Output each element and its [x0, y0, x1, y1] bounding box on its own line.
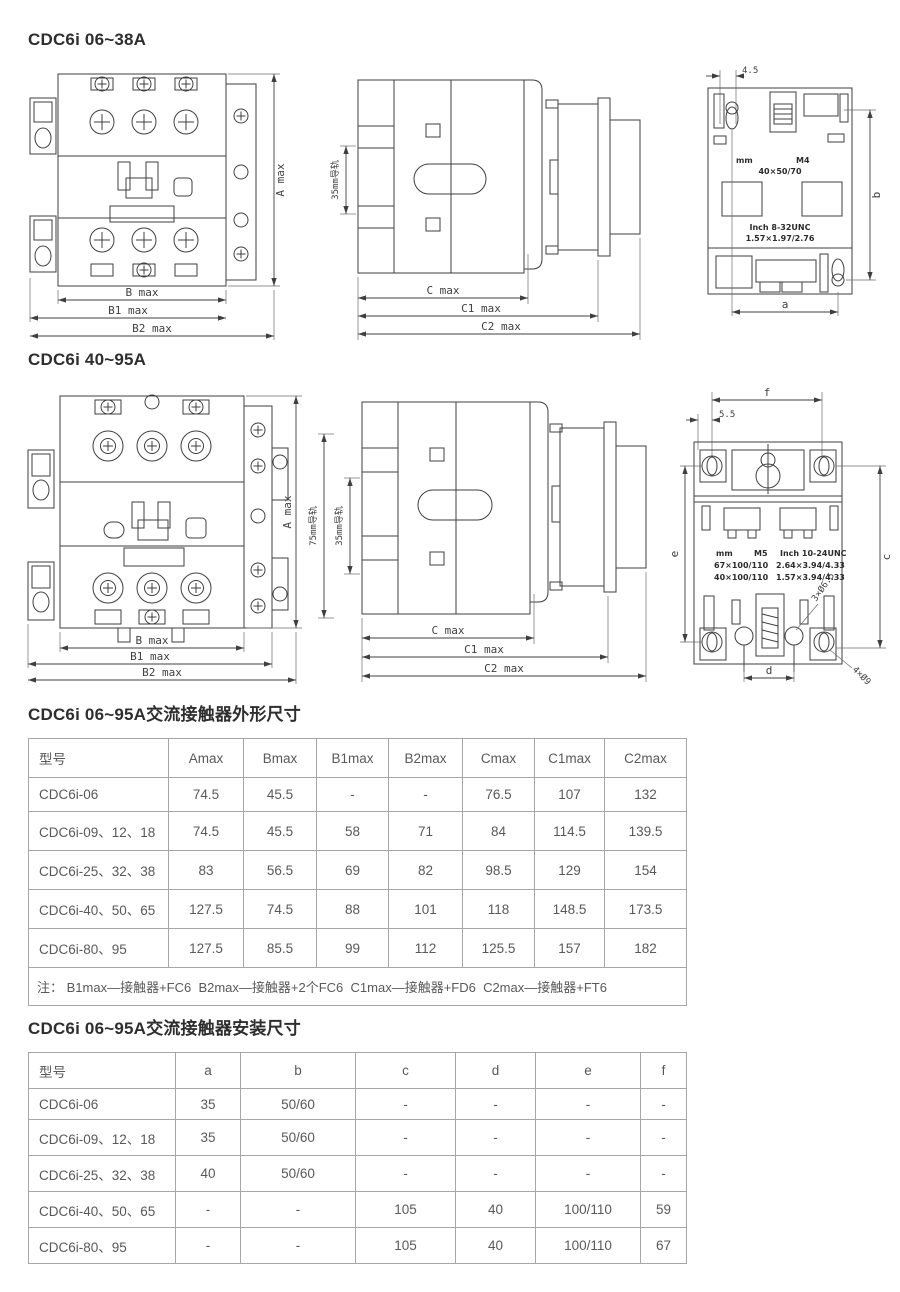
value-cell: - — [241, 1228, 356, 1264]
back-view-drawing-06-38a: 4.5 mm M4 40×50/70 Inch 8-32UNC 1.57×1.9… — [684, 62, 892, 344]
table-body: CDC6i-063550/60----CDC6i-09、12、183550/60… — [29, 1089, 687, 1264]
mount-inch-label: 1.57×1.97/2.76 — [746, 234, 815, 243]
value-cell: 45.5 — [244, 778, 317, 812]
side2-rail-dims: 75mm导轨 35mm导轨 — [307, 434, 360, 618]
value-cell: 71 — [389, 812, 463, 851]
table-row: CDC6i-09、12、183550/60---- — [29, 1120, 687, 1156]
value-cell: 99 — [317, 929, 389, 968]
value-cell: 40 — [456, 1228, 536, 1264]
value-cell: 118 — [463, 890, 535, 929]
dim-label-c-max: C max — [426, 284, 459, 297]
unit-mm-label: mm — [716, 549, 733, 558]
value-cell: - — [176, 1228, 241, 1264]
value-cell: 56.5 — [244, 851, 317, 890]
value-cell: 139.5 — [605, 812, 687, 851]
front1-body — [30, 74, 256, 286]
dim-label-b-max: B max — [125, 286, 158, 299]
mount-inch-row1: 2.64×3.94/4.33 — [776, 561, 845, 570]
value-cell: - — [356, 1089, 456, 1120]
model-cell: CDC6i-09、12、18 — [29, 812, 169, 851]
dim-label-c2-max: C2 max — [481, 320, 521, 333]
value-cell: - — [356, 1120, 456, 1156]
unit-inch-label: Inch 10-24UNC — [780, 549, 847, 558]
mounting-dimensions-table: 型号abcdef CDC6i-063550/60----CDC6i-09、12、… — [28, 1052, 687, 1264]
value-cell: 84 — [463, 812, 535, 851]
front2-body — [28, 395, 288, 642]
column-header: a — [176, 1053, 241, 1089]
value-cell: 74.5 — [169, 812, 244, 851]
value-cell: - — [176, 1192, 241, 1228]
back1-dimensions: b a — [732, 110, 883, 316]
value-cell: 100/110 — [536, 1228, 641, 1264]
value-cell: 69 — [317, 851, 389, 890]
dim-label-f: f — [764, 386, 771, 399]
rail-35mm-label: 35mm导轨 — [333, 506, 345, 546]
value-cell: 40 — [456, 1192, 536, 1228]
value-cell: 50/60 — [241, 1120, 356, 1156]
value-cell: 182 — [605, 929, 687, 968]
value-cell: 74.5 — [244, 890, 317, 929]
side1-rail-dim: 35mm导轨 — [329, 146, 356, 214]
value-cell: 85.5 — [244, 929, 317, 968]
model-cell: CDC6i-09、12、18 — [29, 1120, 176, 1156]
side2-body — [362, 402, 646, 614]
holes-4x9-label: 4×Ø9 — [850, 664, 873, 687]
value-cell: 50/60 — [241, 1156, 356, 1192]
value-cell: - — [389, 778, 463, 812]
column-header: B1max — [317, 739, 389, 778]
value-cell: - — [356, 1156, 456, 1192]
rail-35mm-label: 35mm导轨 — [329, 160, 341, 200]
column-header: C2max — [605, 739, 687, 778]
value-cell: 74.5 — [169, 778, 244, 812]
value-cell: - — [536, 1089, 641, 1120]
dim-label-b1-max: B1 max — [108, 304, 148, 317]
dim-label-b2-max: B2 max — [142, 666, 182, 679]
side-view-drawing-40-95a: 75mm导轨 35mm导轨 C max — [292, 386, 664, 692]
dim-label-b-max: B max — [135, 634, 168, 647]
value-cell: - — [641, 1120, 687, 1156]
dim-label-c-max: C max — [431, 624, 464, 637]
mount-mm-label: 40×50/70 — [758, 167, 801, 176]
value-cell: 157 — [535, 929, 605, 968]
value-cell: 98.5 — [463, 851, 535, 890]
unit-mm-label: mm — [736, 156, 753, 165]
dim-label-a: a — [782, 298, 789, 311]
section-title-06-38a: CDC6i 06~38A — [28, 30, 146, 50]
value-cell: - — [456, 1156, 536, 1192]
model-cell: CDC6i-40、50、65 — [29, 1192, 176, 1228]
value-cell: - — [641, 1156, 687, 1192]
dim-label-a-max: A max — [274, 163, 287, 196]
dim-label-b1-max: B1 max — [130, 650, 170, 663]
column-header: b — [241, 1053, 356, 1089]
dim-label-d: d — [766, 664, 773, 677]
side1-body — [358, 80, 640, 273]
value-cell: 58 — [317, 812, 389, 851]
dim-label-c2-max: C2 max — [484, 662, 524, 675]
column-header: e — [536, 1053, 641, 1089]
front-view-drawing-40-95a: A max B max B1 max B2 max — [20, 386, 308, 692]
dim-label-c1-max: C1 max — [461, 302, 501, 315]
model-cell: CDC6i-80、95 — [29, 929, 169, 968]
back2-top-dims: f 5.5 — [686, 386, 822, 458]
column-header: c — [356, 1053, 456, 1089]
table-header-row: 型号abcdef — [29, 1053, 687, 1089]
table-row: CDC6i-25、32、384050/60---- — [29, 1156, 687, 1192]
table-note: 注： B1max—接触器+FC6 B2max—接触器+2个FC6 C1max—接… — [29, 968, 687, 1006]
value-cell: - — [641, 1089, 687, 1120]
value-cell: - — [317, 778, 389, 812]
table-row: CDC6i-80、95--10540100/11067 — [29, 1228, 687, 1264]
value-cell: 129 — [535, 851, 605, 890]
value-cell: 154 — [605, 851, 687, 890]
table-row: CDC6i-80、95127.585.599112125.5157182 — [29, 929, 687, 968]
dim-label-b2-max: B2 max — [132, 322, 172, 335]
value-cell: 112 — [389, 929, 463, 968]
table-header-row: 型号AmaxBmaxB1maxB2maxCmaxC1maxC2max — [29, 739, 687, 778]
rail-75mm-label: 75mm导轨 — [307, 506, 319, 546]
model-cell: CDC6i-25、32、38 — [29, 1156, 176, 1192]
model-cell: CDC6i-40、50、65 — [29, 890, 169, 929]
back1-body: mm M4 40×50/70 Inch 8-32UNC 1.57×1.97/2.… — [708, 88, 852, 294]
dim-label-4-5: 4.5 — [742, 66, 758, 76]
value-cell: - — [536, 1156, 641, 1192]
thread-m5-label: M5 — [754, 549, 768, 558]
value-cell: 101 — [389, 890, 463, 929]
dim-label-5-5: 5.5 — [719, 410, 735, 420]
value-cell: - — [456, 1120, 536, 1156]
table-row: CDC6i-40、50、65--10540100/11059 — [29, 1192, 687, 1228]
value-cell: 40 — [176, 1156, 241, 1192]
column-header: Cmax — [463, 739, 535, 778]
model-cell: CDC6i-80、95 — [29, 1228, 176, 1264]
back2-body: mm M5 Inch 10-24UNC 67×100/110 2.64×3.94… — [694, 442, 873, 687]
value-cell: 107 — [535, 778, 605, 812]
section-title-outline-dimensions: CDC6i 06~95A交流接触器外形尺寸 — [28, 700, 301, 725]
outline-dimensions-table: 型号AmaxBmaxB1maxB2maxCmaxC1maxC2max CDC6i… — [28, 738, 687, 1006]
thread-m4-label: M4 — [796, 156, 810, 165]
value-cell: 35 — [176, 1089, 241, 1120]
column-header: Bmax — [244, 739, 317, 778]
column-header: Amax — [169, 739, 244, 778]
value-cell: - — [241, 1192, 356, 1228]
value-cell: 67 — [641, 1228, 687, 1264]
value-cell: 50/60 — [241, 1089, 356, 1120]
value-cell: 83 — [169, 851, 244, 890]
value-cell: 127.5 — [169, 890, 244, 929]
section-title-mounting-dimensions: CDC6i 06~95A交流接触器安装尺寸 — [28, 1014, 301, 1039]
value-cell: 45.5 — [244, 812, 317, 851]
value-cell: - — [536, 1120, 641, 1156]
dim-label-c: c — [880, 554, 893, 561]
model-cell: CDC6i-06 — [29, 1089, 176, 1120]
table-row: CDC6i-063550/60---- — [29, 1089, 687, 1120]
value-cell: - — [456, 1089, 536, 1120]
model-cell: CDC6i-06 — [29, 778, 169, 812]
column-header: d — [456, 1053, 536, 1089]
column-header: f — [641, 1053, 687, 1089]
value-cell: 105 — [356, 1192, 456, 1228]
model-cell: CDC6i-25、32、38 — [29, 851, 169, 890]
column-header: 型号 — [29, 739, 169, 778]
table-row: CDC6i-09、12、1874.545.5587184114.5139.5 — [29, 812, 687, 851]
column-header: 型号 — [29, 1053, 176, 1089]
dim-label-c1-max: C1 max — [464, 643, 504, 656]
mount-mm-row1: 67×100/110 — [714, 561, 769, 570]
side2-dimensions: C max C1 max C2 max — [362, 572, 646, 682]
value-cell: 173.5 — [605, 890, 687, 929]
value-cell: 127.5 — [169, 929, 244, 968]
value-cell: 100/110 — [536, 1192, 641, 1228]
front-view-drawing-06-38a: A max B max B1 max B2 max — [22, 68, 302, 346]
mount-mm-row2: 40×100/110 — [714, 573, 769, 582]
dim-label-b: b — [870, 192, 883, 199]
value-cell: 88 — [317, 890, 389, 929]
note-row: 注： B1max—接触器+FC6 B2max—接触器+2个FC6 C1max—接… — [29, 968, 687, 1006]
table-row: CDC6i-25、32、388356.5698298.5129154 — [29, 851, 687, 890]
table-row: CDC6i-0674.545.5--76.5107132 — [29, 778, 687, 812]
table-row: CDC6i-40、50、65127.574.588101118148.5173.… — [29, 890, 687, 929]
unit-inch-label: Inch 8-32UNC — [750, 223, 811, 232]
value-cell: 132 — [605, 778, 687, 812]
value-cell: 125.5 — [463, 929, 535, 968]
back-view-drawing-40-95a: f 5.5 mm M5 Inch 10-24UNC 67×100/110 2.6… — [668, 380, 900, 692]
value-cell: 35 — [176, 1120, 241, 1156]
value-cell: 114.5 — [535, 812, 605, 851]
value-cell: 59 — [641, 1192, 687, 1228]
side-view-drawing-06-38a: 35mm导轨 C max C1 max — [296, 68, 664, 346]
front1-dimensions: A max B max B1 max B2 max — [30, 74, 287, 340]
datasheet-page: CDC6i 06~38A — [0, 0, 900, 1292]
value-cell: 82 — [389, 851, 463, 890]
column-header: B2max — [389, 739, 463, 778]
value-cell: 148.5 — [535, 890, 605, 929]
section-title-40-95a: CDC6i 40~95A — [28, 350, 146, 370]
column-header: C1max — [535, 739, 605, 778]
dim-label-e: e — [668, 551, 681, 558]
value-cell: 76.5 — [463, 778, 535, 812]
value-cell: 105 — [356, 1228, 456, 1264]
table-body: CDC6i-0674.545.5--76.5107132CDC6i-09、12、… — [29, 778, 687, 968]
